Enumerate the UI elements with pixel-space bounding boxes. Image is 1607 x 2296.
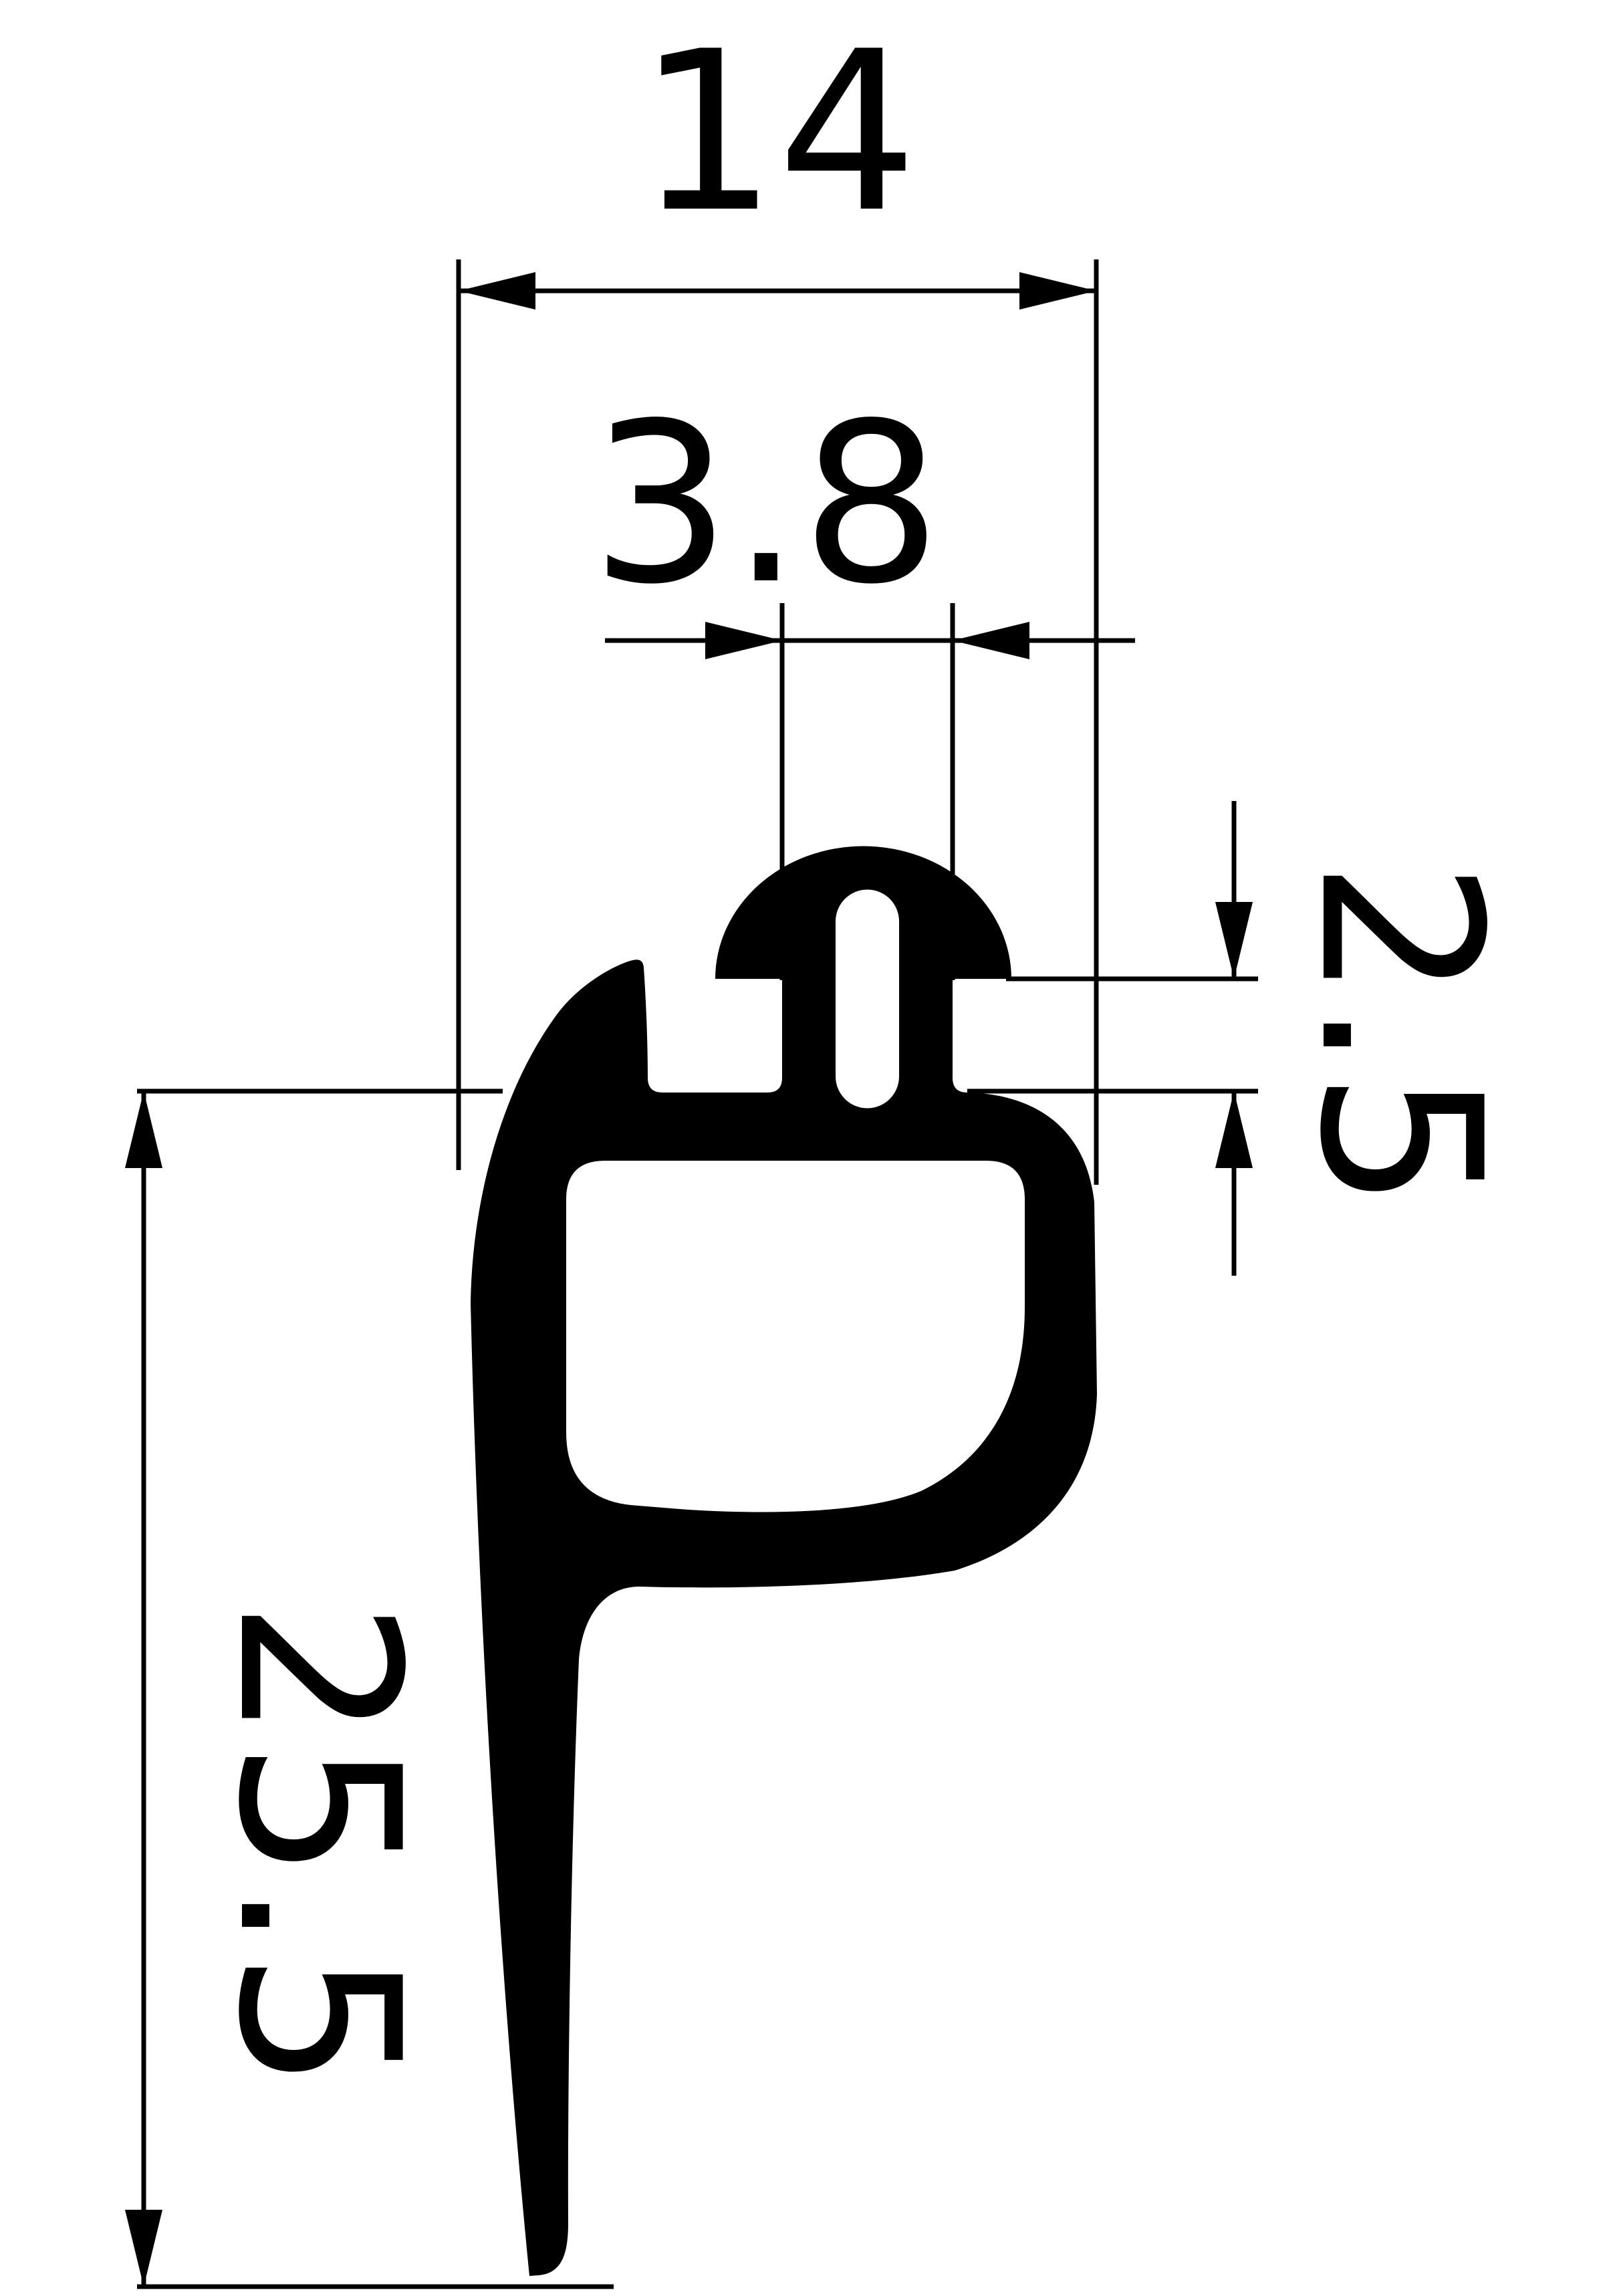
arrowhead-down-icon: [125, 2210, 162, 2287]
arrowhead-right-icon: [1019, 272, 1096, 310]
dimension-label-stem-width: 3.8: [591, 376, 942, 633]
arrowhead-down-icon: [1215, 902, 1253, 979]
arrowhead-up-icon: [125, 1091, 162, 1168]
technical-drawing: 14 3.8 2.5 25.5: [0, 0, 1607, 2296]
drawing-sheet: 14 3.8 2.5 25.5: [0, 0, 1607, 2296]
arrowhead-right-icon: [953, 622, 1029, 659]
dimension-label-top-width: 14: [637, 4, 918, 261]
dimension-label-lip-height: 2.5: [1271, 860, 1528, 1211]
arrowhead-left-icon: [459, 272, 535, 310]
dimension-label-overall-height: 25.5: [190, 1600, 447, 2091]
arrowhead-up-icon: [1215, 1091, 1253, 1168]
profile-cross-section: [471, 846, 1097, 2276]
